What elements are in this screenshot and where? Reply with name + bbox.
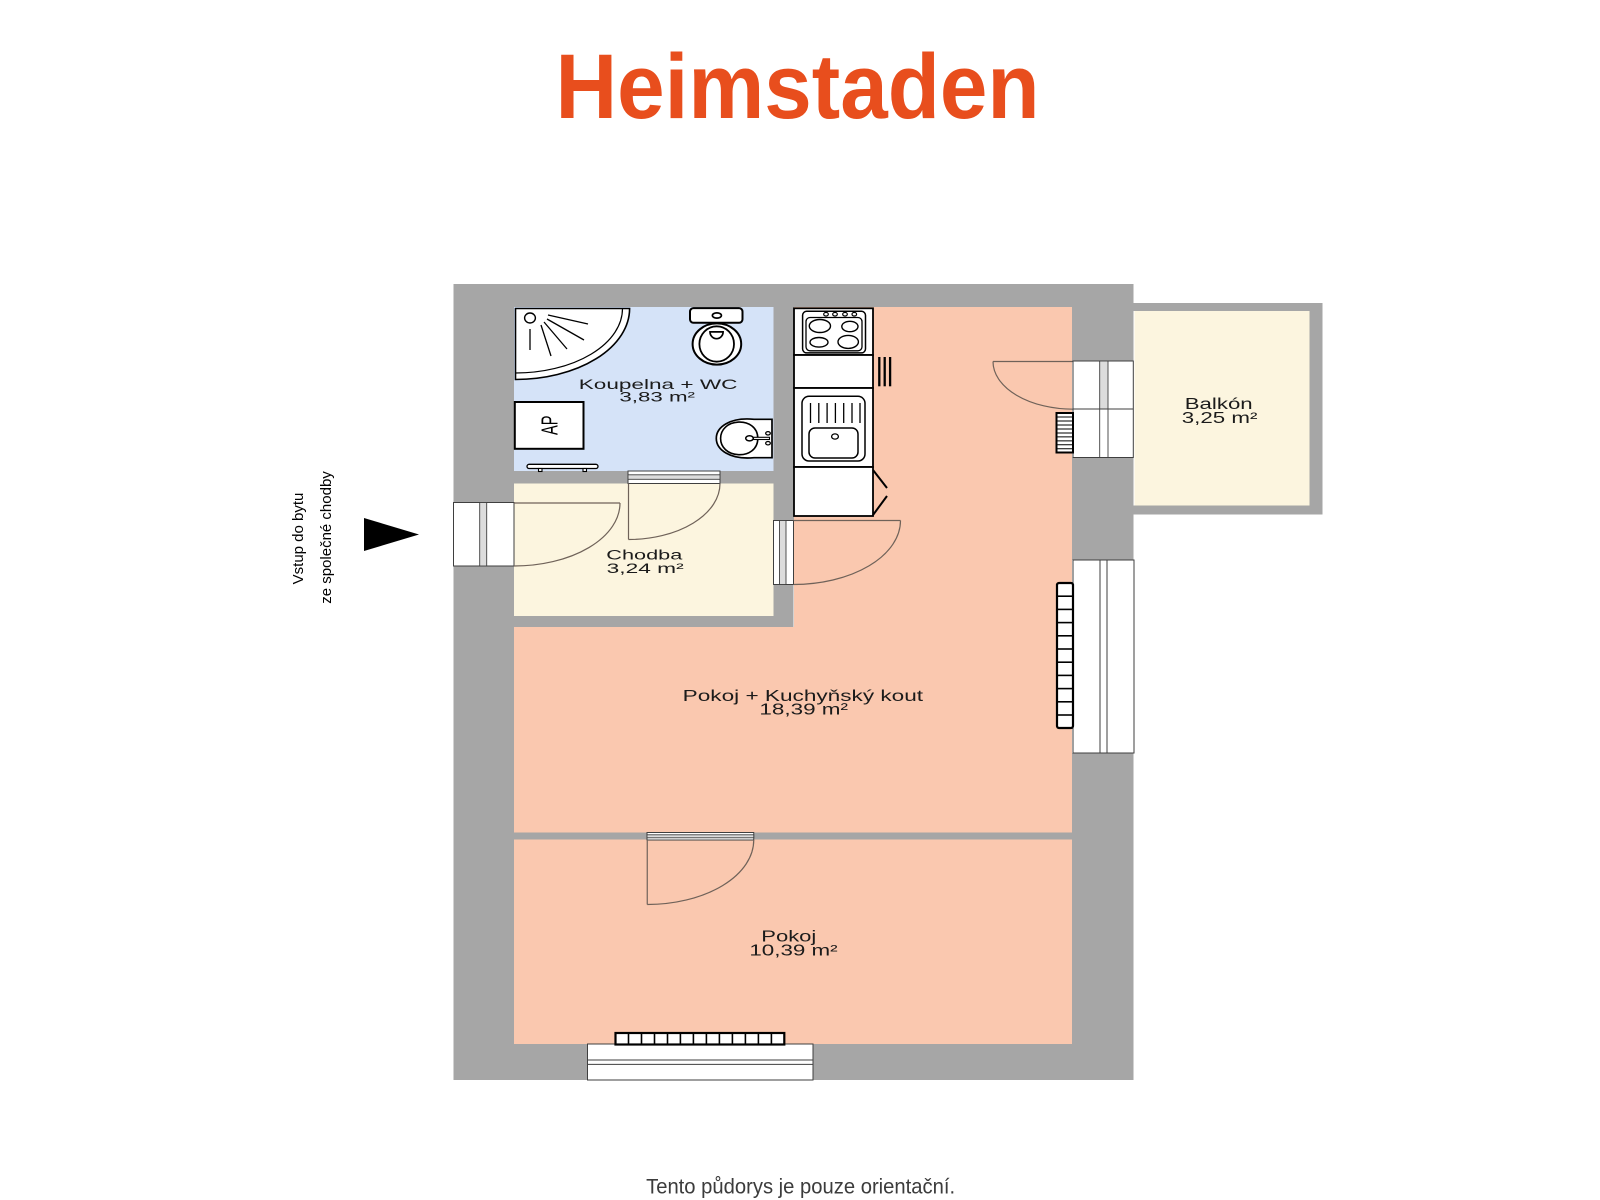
svg-text:Vstup do bytu: Vstup do bytu bbox=[290, 493, 307, 585]
svg-text:3,83 m²: 3,83 m² bbox=[619, 389, 695, 404]
svg-text:Heimstaden: Heimstaden bbox=[556, 36, 1040, 138]
svg-text:18,39 m²: 18,39 m² bbox=[759, 702, 849, 719]
svg-text:ze společné chodby: ze společné chodby bbox=[318, 471, 335, 604]
svg-text:AP: AP bbox=[537, 415, 563, 435]
svg-text:Tento půdorys je pouze orienta: Tento půdorys je pouze orientační. bbox=[646, 1175, 955, 1199]
svg-text:10,39 m²: 10,39 m² bbox=[749, 942, 837, 959]
svg-text:3,24 m²: 3,24 m² bbox=[607, 561, 685, 576]
svg-text:3,25 m²: 3,25 m² bbox=[1182, 410, 1258, 427]
